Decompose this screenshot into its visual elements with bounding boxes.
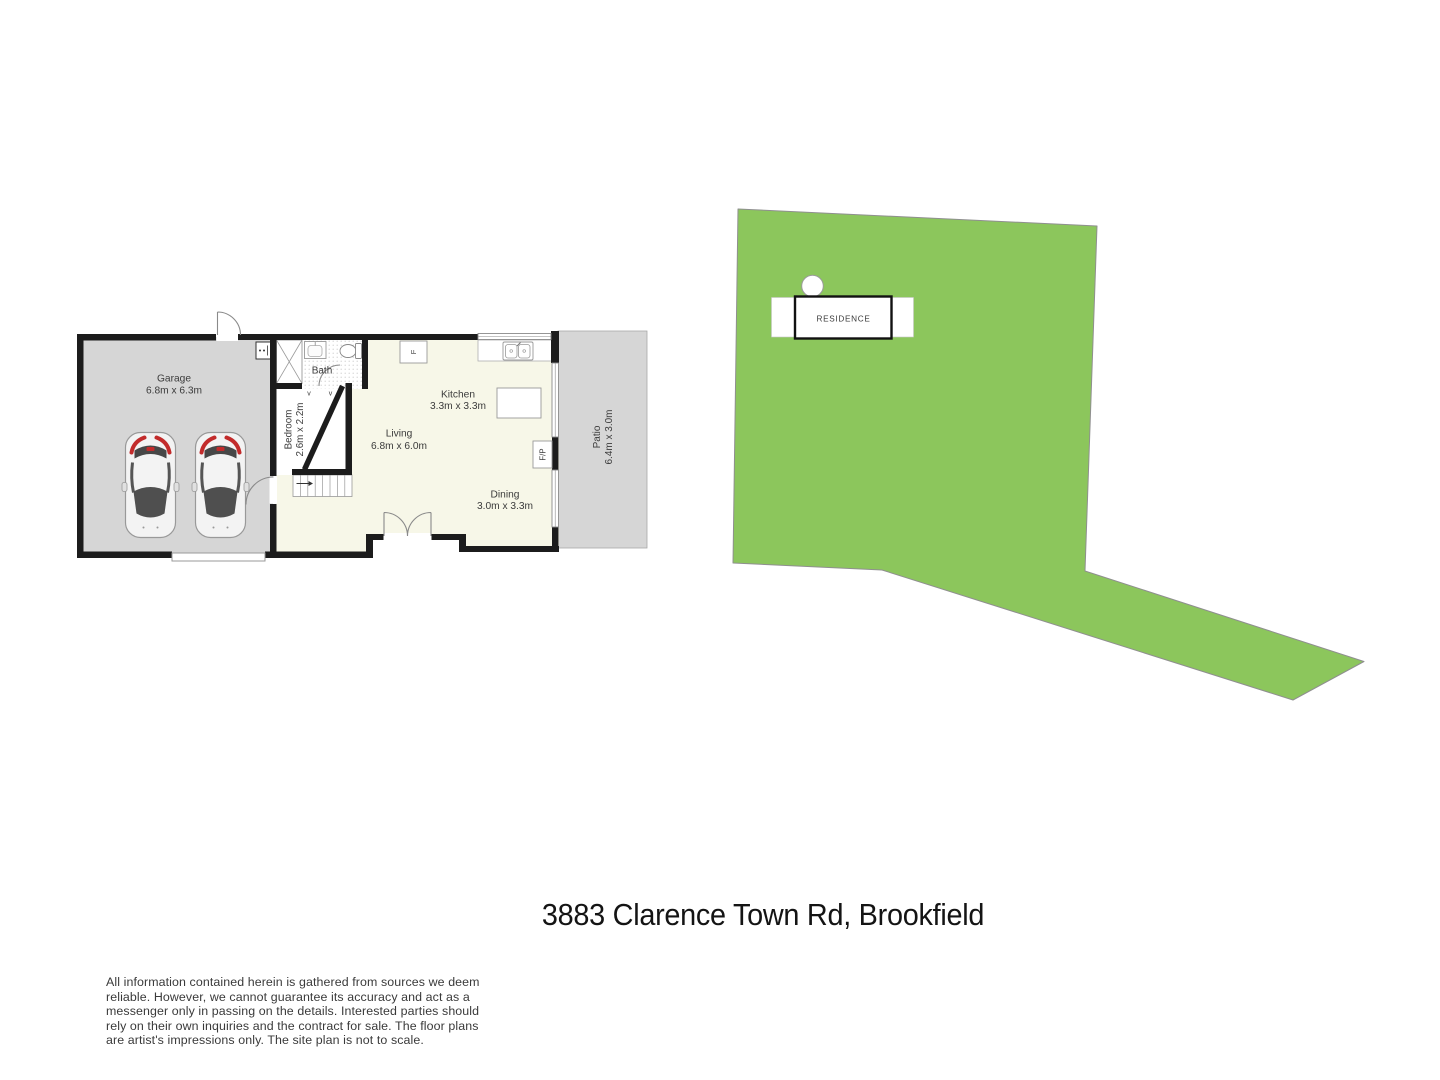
car-icon: [192, 433, 249, 538]
disclaimer-line: messenger only in passing on the details…: [106, 1004, 480, 1019]
hall-door-gap: [270, 477, 278, 504]
page-title: 3883 Clarence Town Rd, Brookfield: [525, 897, 1000, 933]
page-title-text: 3883 Clarence Town Rd, Brookfield: [542, 897, 984, 933]
disclaimer: All information contained herein is gath…: [106, 975, 480, 1048]
residence-left-wing: [772, 298, 796, 338]
living-name-label: Living: [386, 429, 413, 440]
entry-door: [218, 312, 241, 335]
car-icon: [122, 433, 179, 538]
entry-door-gap: [217, 333, 239, 341]
vanity-basin: [308, 346, 322, 357]
living-dims-label: 6.8m x 6.0m: [371, 441, 427, 452]
fireplace-label: F/P: [539, 448, 548, 460]
bedroom-name-label: Bedroom: [284, 410, 295, 450]
sink-bowl: [519, 345, 531, 359]
dining-dims-label: 3.0m x 3.3m: [477, 501, 533, 512]
toilet-tank: [356, 344, 362, 359]
garage-roller-door: [172, 553, 265, 561]
residence-label: RESIDENCE: [816, 315, 870, 324]
bath-name-label: Bath: [312, 366, 333, 377]
kitchen-name-label: Kitchen: [441, 390, 475, 401]
toilet-bowl: [340, 345, 356, 358]
fridge-label: F: [409, 349, 418, 354]
dining-name-label: Dining: [491, 490, 520, 501]
sink-bowl: [506, 345, 518, 359]
site-plan: RESIDENCE: [733, 209, 1364, 700]
vent-mark: v: [307, 391, 311, 398]
disclaimer-line: are artist's impressions only. The site …: [106, 1033, 480, 1048]
residence-right-wing: [892, 298, 914, 338]
disclaimer-line: reliable. However, we cannot guarantee i…: [106, 990, 480, 1005]
panel-dot: [263, 350, 265, 352]
patio-dims-label: 6.4m x 3.0m: [604, 409, 615, 464]
garage-name-label: Garage: [157, 374, 191, 385]
kitchen-dims-label: 3.3m x 3.3m: [430, 401, 486, 412]
panel-dot: [259, 350, 261, 352]
bedroom-dims-label: 2.6m x 2.2m: [295, 403, 306, 457]
disclaimer-line: rely on their own inquiries and the cont…: [106, 1019, 480, 1034]
disclaimer-line: All information contained herein is gath…: [106, 975, 480, 990]
kitchen-island: [497, 388, 541, 418]
tank-circle: [802, 275, 824, 297]
page: RESIDENCE F: [0, 0, 1440, 1080]
lot-polygon: [733, 209, 1364, 700]
floor-plan: F: [77, 312, 647, 561]
patio-name-label: Patio: [592, 425, 603, 448]
garage-dims-label: 6.8m x 6.3m: [146, 386, 202, 397]
vent-mark: v: [329, 391, 333, 398]
